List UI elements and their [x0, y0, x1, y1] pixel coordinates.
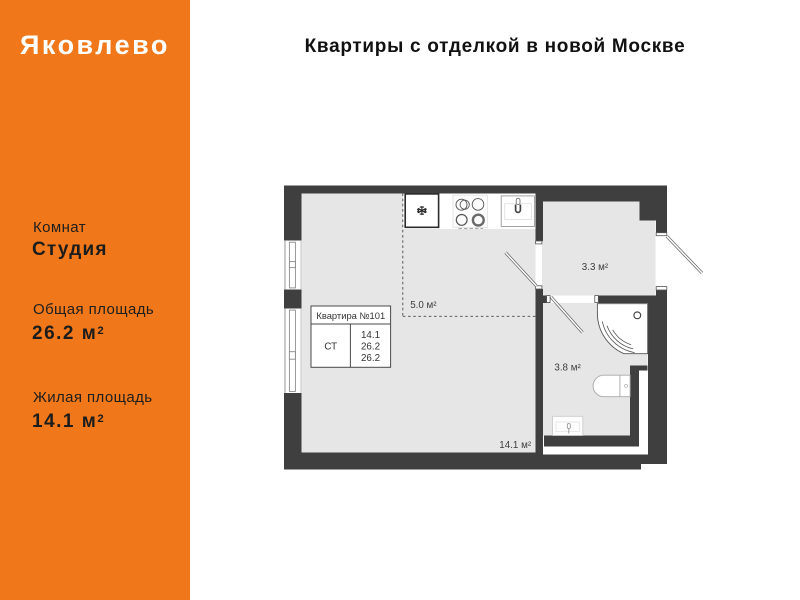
svg-text:14.1 м²: 14.1 м² [499, 440, 532, 451]
svg-text:14.1: 14.1 [361, 330, 380, 341]
svg-text:5.0 м²: 5.0 м² [410, 300, 437, 311]
svg-text:3.8 м²: 3.8 м² [554, 362, 581, 373]
svg-text:26.2: 26.2 [361, 342, 380, 353]
svg-text:26.2: 26.2 [361, 353, 380, 364]
svg-text:СТ: СТ [324, 342, 337, 353]
svg-text:3.3 м²: 3.3 м² [582, 262, 609, 273]
svg-text:Квартира №101: Квартира №101 [316, 310, 385, 321]
